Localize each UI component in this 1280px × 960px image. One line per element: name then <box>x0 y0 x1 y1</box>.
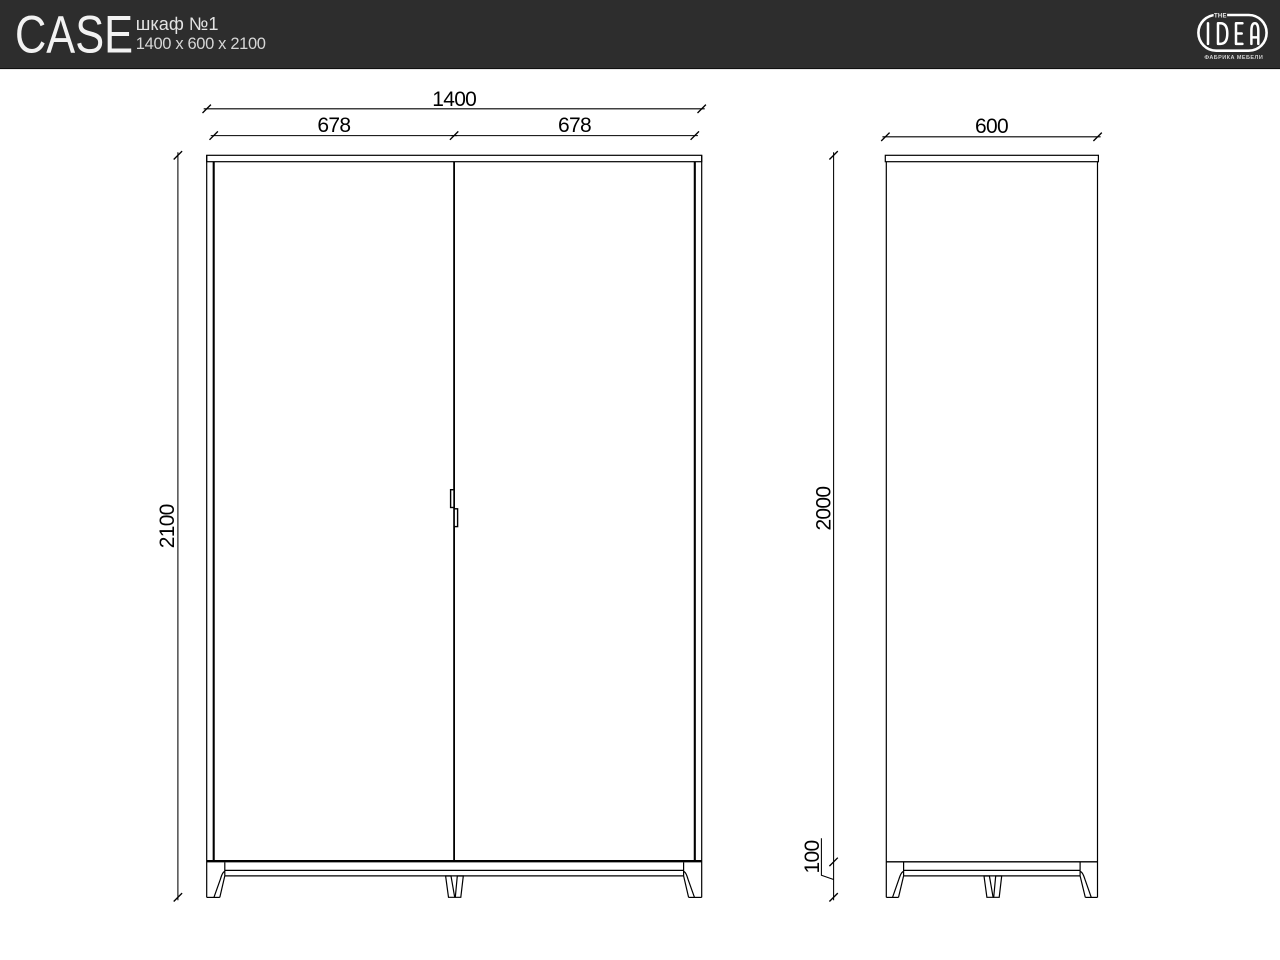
svg-text:шкаф №1: шкаф №1 <box>136 14 219 34</box>
svg-text:THE: THE <box>1214 14 1227 20</box>
svg-text:100: 100 <box>801 841 824 874</box>
svg-text:CASE: CASE <box>15 6 133 65</box>
svg-text:678: 678 <box>317 114 350 137</box>
svg-text:678: 678 <box>558 114 591 137</box>
svg-text:600: 600 <box>975 115 1008 138</box>
svg-text:2000: 2000 <box>813 487 836 531</box>
svg-text:2100: 2100 <box>156 504 179 548</box>
svg-text:ФАБРИКА МЕБЕЛИ: ФАБРИКА МЕБЕЛИ <box>1204 55 1263 61</box>
svg-text:1400 x 600 x 2100: 1400 x 600 x 2100 <box>136 35 266 53</box>
svg-text:1400: 1400 <box>432 88 476 111</box>
